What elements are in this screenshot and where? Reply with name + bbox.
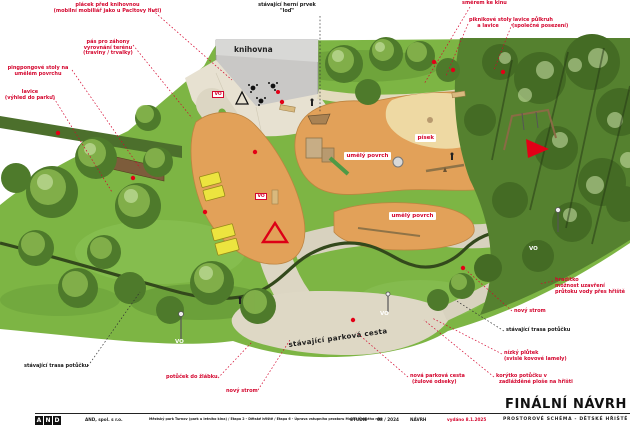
plan-sheet: knihovna stávající parková cesta umělý p… [0, 0, 630, 427]
scheme-label: PROSTOROVÉ SCHÉMA - DĚTSKÉ HŘIŠTĚ [503, 417, 628, 422]
annotation-piknikove: piknikové stoly a lavice [469, 17, 507, 30]
and-logo: AND [35, 416, 61, 425]
stage-label: NÁVRH [410, 417, 426, 422]
annotation-pas-zahony: pás pro záhony vyrovnání terénu (traviny… [74, 40, 142, 57]
annotation-hraditko: hradítko možnost uzavření průtoku vody p… [555, 277, 625, 295]
vo-text-label: VO [380, 311, 389, 317]
sheet-title: FINÁLNÍ NÁVRH [505, 397, 627, 412]
date-label: 08 / 2024 [377, 417, 399, 422]
annotation-nova-parkova: nová parková cesta (žulové odseky) [410, 373, 465, 385]
surface-label-umely-2: umělý povrch [389, 212, 436, 220]
titleblock-rule [35, 413, 630, 414]
vo-box-label: VO [212, 91, 224, 98]
annotation-novy-strom-bottom: nový strom [226, 388, 258, 394]
project-title: Městský park Turnov (park u letního kina… [149, 417, 383, 421]
library-label: knihovna [234, 45, 273, 54]
boat-play-element [308, 114, 330, 124]
annotation-novy-strom-right: nový strom [514, 308, 546, 314]
annotation-stav-trasa-right: stávající trasa potůčku [506, 327, 570, 333]
phase-label: STUDIE [350, 417, 367, 422]
annotation-stav-trasa-left: stávající trasa potůčku [24, 363, 88, 369]
annotation-smerem-ke-kinu: směrem ke kinu [462, 0, 507, 6]
issued-label: vydáno 8.1.2025 [447, 417, 486, 422]
vo-box-label: VO [255, 193, 267, 200]
annotation-pingpong: pingpongové stoly na umělém povrchu [4, 65, 72, 78]
titleblock-row: AND AND, spol. s r.o. Městský park Turno… [35, 416, 628, 426]
vo-text-label: VO [175, 339, 184, 345]
park-plan-illustration [0, 0, 630, 427]
annotation-potucek-zlabek: potůček do žlábku [166, 374, 218, 380]
vo-text-label: VO [529, 246, 538, 252]
annotation-herni-prvek: stávající herní prvek "loď" [255, 2, 319, 15]
annotation-lavice-pulkruh: lavice půlkruh (společné posezení) [512, 17, 554, 30]
surface-label-pisek: písek [415, 134, 436, 142]
annotation-lavice-vyhled: lavice (výhled do parku) [2, 89, 58, 102]
surface-label-umely-1: umělý povrch [344, 152, 391, 160]
annotation-korytko: korýtko potůčku v zadlážděné ploše na hř… [496, 373, 573, 385]
annotation-nizky-plutek: nízký plůtek (svislé kovové lamely) [504, 350, 567, 362]
company-name: AND, spol. s r.o. [85, 417, 123, 422]
annotation-placek: plácek před knihovnou (mobilní mobiliář … [5, 2, 210, 15]
